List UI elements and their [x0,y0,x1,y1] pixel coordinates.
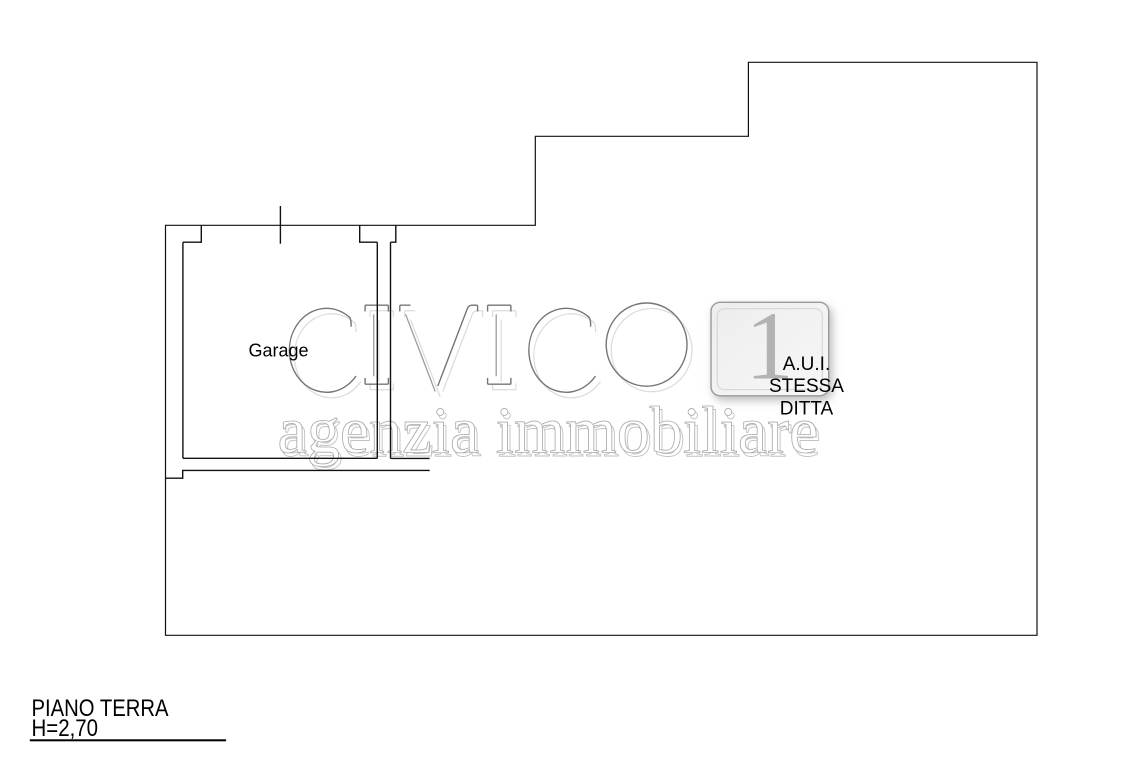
svg-text:agenzia immobiliare: agenzia immobiliare [278,394,819,468]
svg-text:Garage: Garage [249,341,309,361]
svg-text:H=2,70: H=2,70 [32,715,99,742]
svg-text:A.U.I.: A.U.I. [783,354,831,375]
svg-text:DITTA: DITTA [780,399,834,420]
svg-text:STESSA: STESSA [769,376,844,397]
